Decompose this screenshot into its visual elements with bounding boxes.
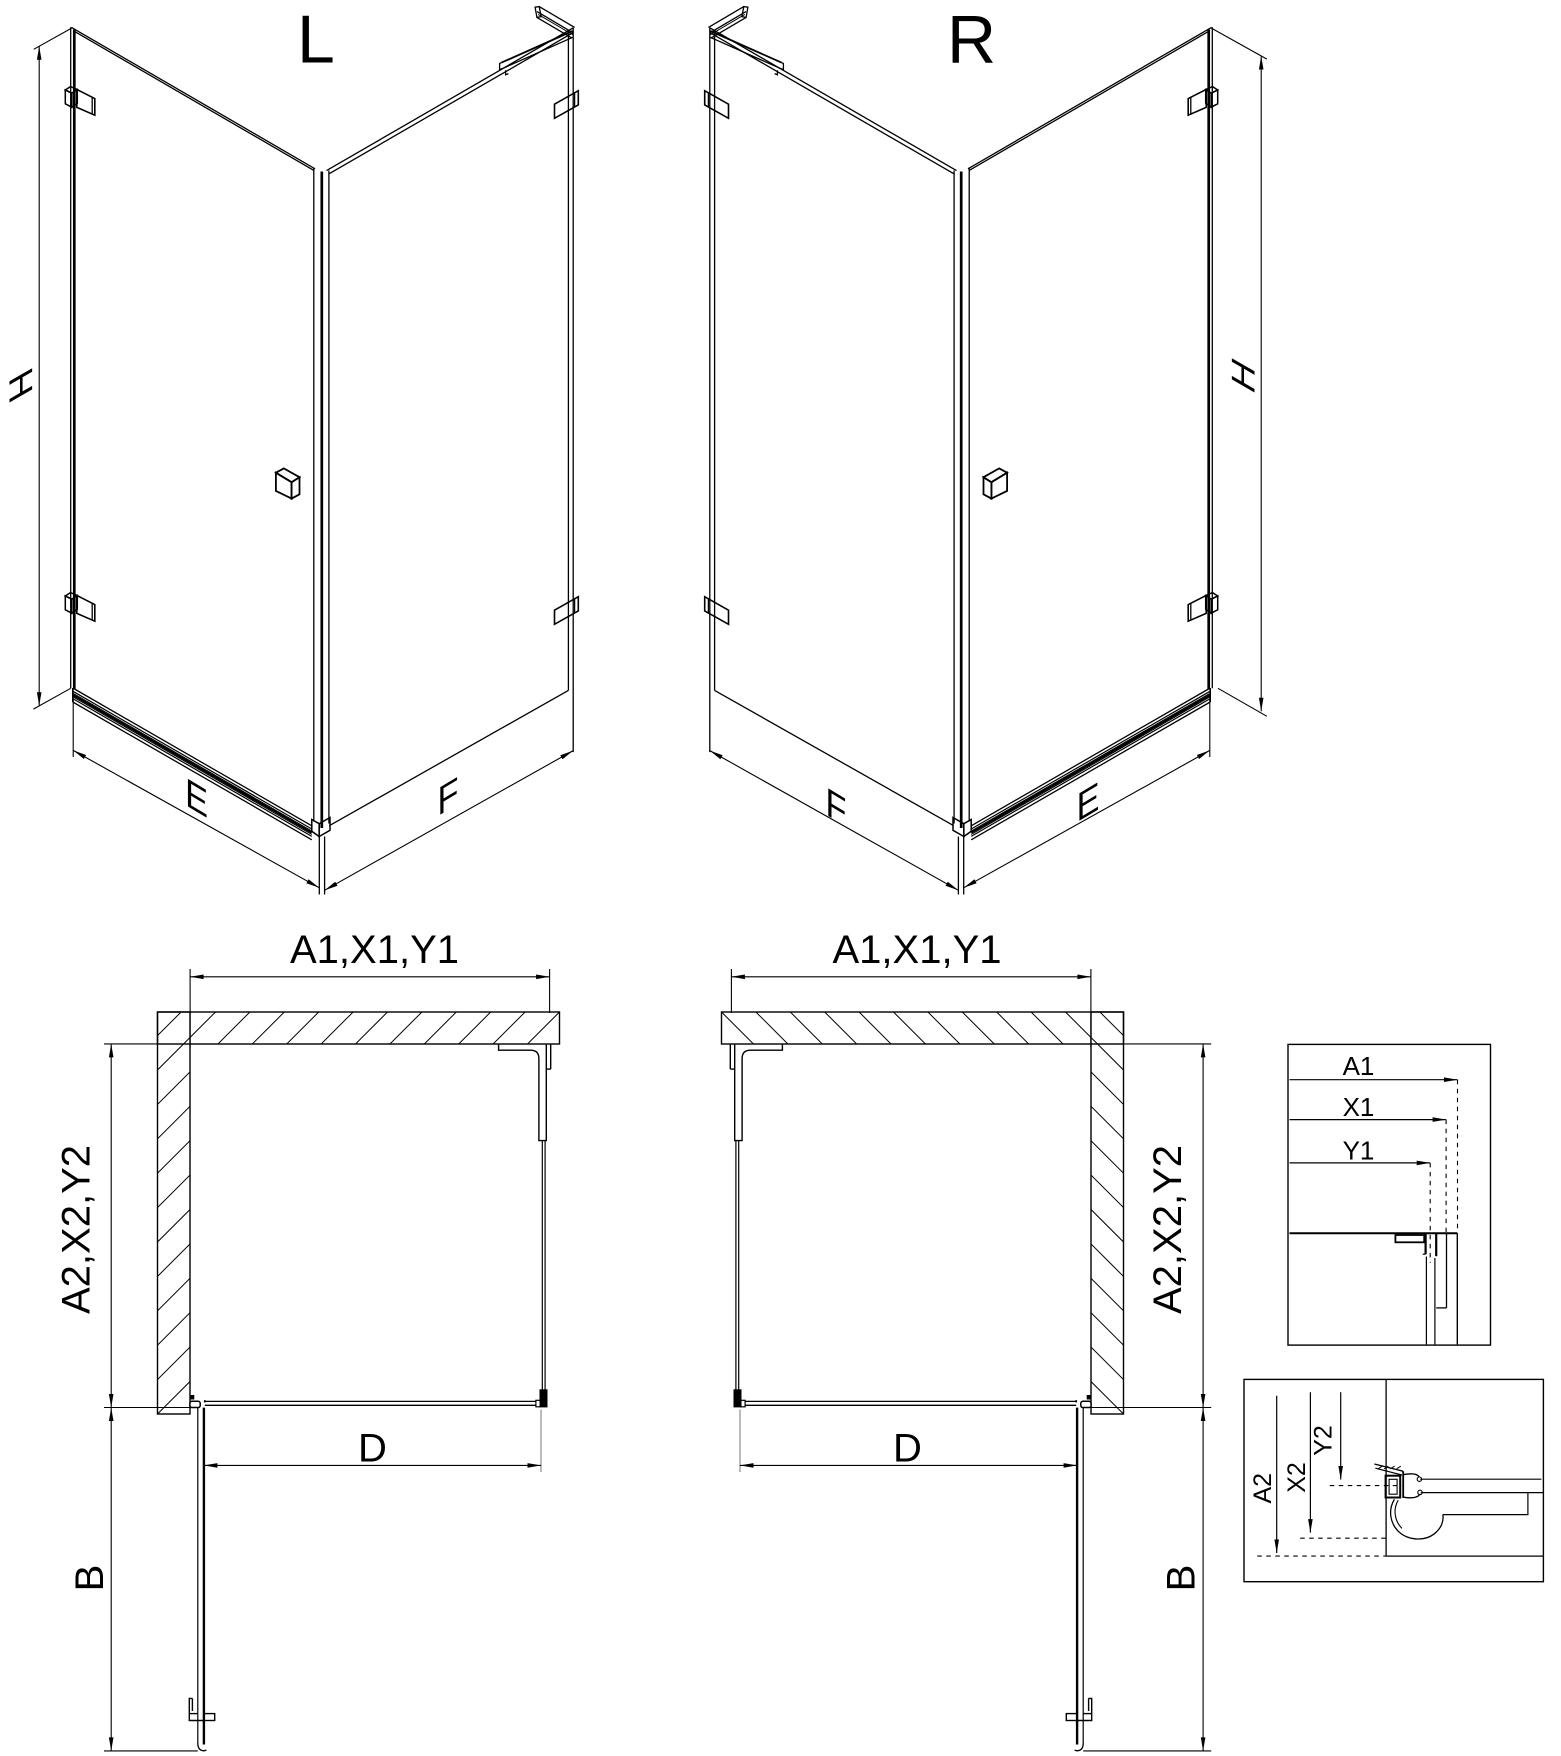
svg-text:L: L	[297, 1, 335, 77]
svg-text:A2,X2,Y2: A2,X2,Y2	[55, 1145, 99, 1314]
svg-text:A1,X1,Y1: A1,X1,Y1	[290, 928, 459, 972]
svg-text:X1: X1	[1343, 1092, 1375, 1122]
svg-text:A2,X2,Y2: A2,X2,Y2	[1146, 1145, 1190, 1314]
svg-text:Y1: Y1	[1343, 1135, 1375, 1165]
svg-text:A1,X1,Y1: A1,X1,Y1	[832, 928, 1001, 972]
svg-text:X2: X2	[1283, 1462, 1311, 1493]
svg-text:R: R	[947, 2, 996, 78]
svg-text:A1: A1	[1343, 1051, 1375, 1081]
svg-text:Y2: Y2	[1310, 1425, 1338, 1456]
svg-text:B: B	[68, 1565, 112, 1592]
svg-text:B: B	[1160, 1565, 1204, 1592]
svg-text:D: D	[893, 1427, 922, 1471]
svg-text:D: D	[358, 1427, 387, 1471]
svg-text:A2: A2	[1249, 1473, 1277, 1504]
